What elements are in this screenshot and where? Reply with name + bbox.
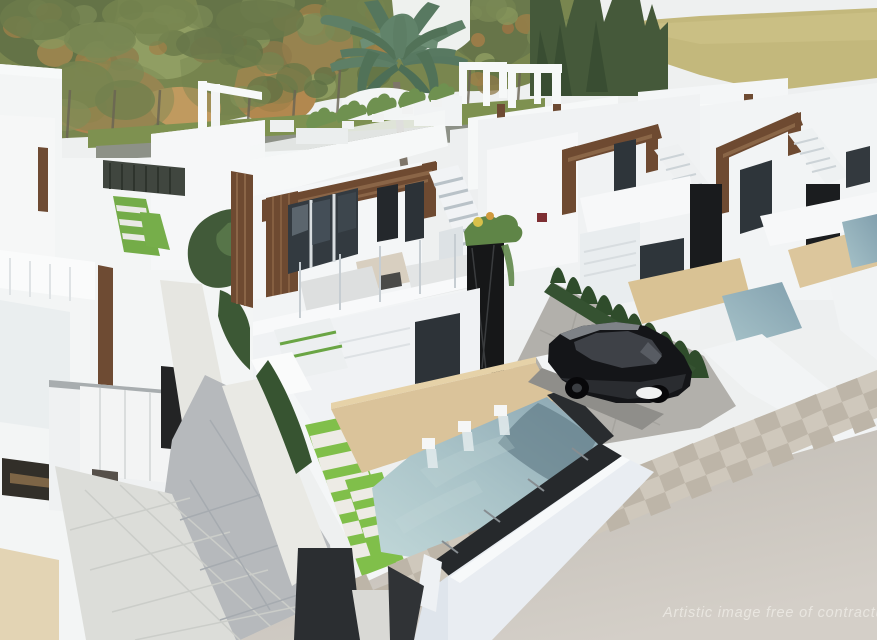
svg-text:Artistic image free of contrac: Artistic image free of contractual — [662, 605, 877, 621]
